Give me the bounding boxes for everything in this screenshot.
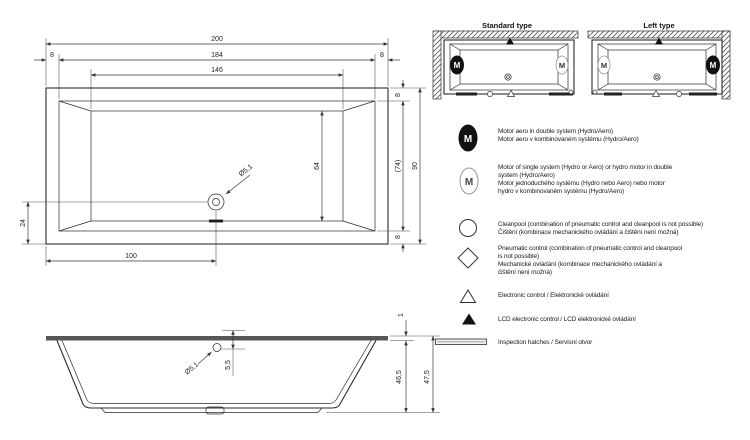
inspection-hatch-bar <box>689 93 717 96</box>
electronic-control-icon <box>458 288 478 304</box>
legend-line: Pneumatic control (combination of pneuma… <box>498 245 682 253</box>
corner-marker-icon <box>569 90 573 94</box>
wall-hatch-left <box>433 31 441 99</box>
standard-type-diagram: Standard type M M <box>433 21 578 99</box>
technical-drawing-sheet: Ø5,1 200 184 8 8 146 8 (74) 8 90 64 24 1… <box>0 0 750 440</box>
motor-letter: M <box>710 61 717 70</box>
legend-line: Mechanické ovládání (kombinace mechanick… <box>498 261 682 269</box>
corner-marker-icon <box>593 90 597 94</box>
dim-basin-width: 64 <box>314 162 321 170</box>
legend-item-text: LCD electronic control / LCD elektronick… <box>498 316 636 324</box>
motor-letter: M <box>465 177 473 188</box>
dim-inner-length: 184 <box>211 52 223 59</box>
direction-arrow-icon <box>655 38 663 45</box>
legend-line: Motor of single system (Hydro or Aero) o… <box>498 164 672 172</box>
motor-double-icon: M <box>450 56 464 75</box>
legend-line: Electronic control / Elektronické ovládá… <box>498 292 609 300</box>
motor-single-icon: M <box>556 56 568 74</box>
inspection-hatch-bar <box>604 93 622 96</box>
dim-overall-width: 90 <box>412 162 419 170</box>
inspection-hatch-icon <box>435 338 489 347</box>
wall-hatch-right <box>722 31 730 99</box>
direction-arrow-icon <box>506 38 514 45</box>
drawing-svg: Ø5,1 200 184 8 8 146 8 (74) 8 90 64 24 1… <box>0 0 750 440</box>
cleanpool-icon <box>487 91 492 96</box>
cleanpool-icon <box>676 91 681 96</box>
legend-line: Inspection hatches / Servisní otvor <box>498 339 592 347</box>
rim-bar <box>46 336 388 341</box>
dim-basin-length: 146 <box>211 67 223 74</box>
bathtub-plan-view: Ø5,1 200 184 8 8 146 8 (74) 8 90 64 24 1… <box>20 36 426 266</box>
dim-overall-length: 200 <box>211 36 223 43</box>
dim-overflow-depth: 5,5 <box>225 360 232 370</box>
motor-letter: M <box>601 61 607 70</box>
legend-line: Motor jednoduchého systému (Hydro nebo A… <box>498 180 672 188</box>
drain-icon <box>654 74 660 80</box>
motor-letter: M <box>464 134 472 145</box>
dim-drain-from-bottom: 24 <box>20 219 27 227</box>
legend-line: Motor aero v kombinovaném systému (Hydro… <box>498 136 639 144</box>
lcd-control-icon <box>460 312 478 326</box>
legend-line: LCD electronic control / LCD elektronick… <box>498 316 636 324</box>
pneumatic-control-icon <box>456 246 480 270</box>
legend-item-text: Inspection hatches / Servisní otvor <box>498 339 592 347</box>
cleanpool-icon <box>458 218 478 238</box>
dim-rim-left: 8 <box>50 52 54 59</box>
drain-icon <box>505 74 511 80</box>
wall-hatch-top <box>435 31 578 38</box>
motor-double-icon: M <box>706 56 720 75</box>
overflow-hole-icon <box>213 344 221 352</box>
motor-double-icon: M <box>456 123 480 153</box>
legend-line: Motor aero in double system (Hydro/Aero) <box>498 128 639 136</box>
legend-line: is not possible) <box>498 253 682 261</box>
dim-drain-from-left: 100 <box>125 253 137 260</box>
legend-item-text: Electronic control / Elektronické ovládá… <box>498 292 609 300</box>
left-type-diagram: Left type M M <box>588 21 730 99</box>
legend-line: Cleanpool (combination of pneumatic cont… <box>498 221 703 229</box>
inspection-hatch-bar <box>456 93 477 96</box>
dim-inner-width: (74) <box>395 160 402 172</box>
left-type-label: Left type <box>643 21 674 30</box>
dim-rim-top: 8 <box>395 93 402 97</box>
legend-line: system (Hydro/Aero) <box>498 172 672 180</box>
legend-line: hydro v kombinovaném systému (Hydro/Aero… <box>498 188 672 196</box>
legend-line: čištění není možná) <box>498 269 682 277</box>
bathtub-side-view: Ø5,1 5,5 1 46,5 47,5 <box>46 313 440 414</box>
motor-letter: M <box>559 61 565 70</box>
dim-overflow-diameter: Ø5,1 <box>184 361 200 376</box>
dim-rim-height: 1 <box>398 313 405 317</box>
legend-line: Čištění (kombinace mechanického ovládání… <box>498 229 703 237</box>
dim-rim-right: 8 <box>380 52 384 59</box>
legend-item-text: Pneumatic control (combination of pneuma… <box>498 245 682 277</box>
legend-item-text: Motor aero in double system (Hydro/Aero)… <box>498 128 639 144</box>
legend-item-text: Motor of single system (Hydro or Aero) o… <box>498 164 672 196</box>
dim-inner-depth: 46,5 <box>396 370 403 384</box>
standard-type-label: Standard type <box>482 21 532 30</box>
motor-single-icon: M <box>598 56 610 74</box>
motor-single-icon: M <box>457 166 481 196</box>
wall-hatch-top <box>588 31 730 38</box>
dim-drain-diameter: Ø5,1 <box>238 163 254 178</box>
dim-overall-height: 47,5 <box>424 370 431 384</box>
dim-rim-bottom: 8 <box>395 235 402 239</box>
legend-item-text: Cleanpool (combination of pneumatic cont… <box>498 221 703 237</box>
motor-letter: M <box>454 61 461 70</box>
